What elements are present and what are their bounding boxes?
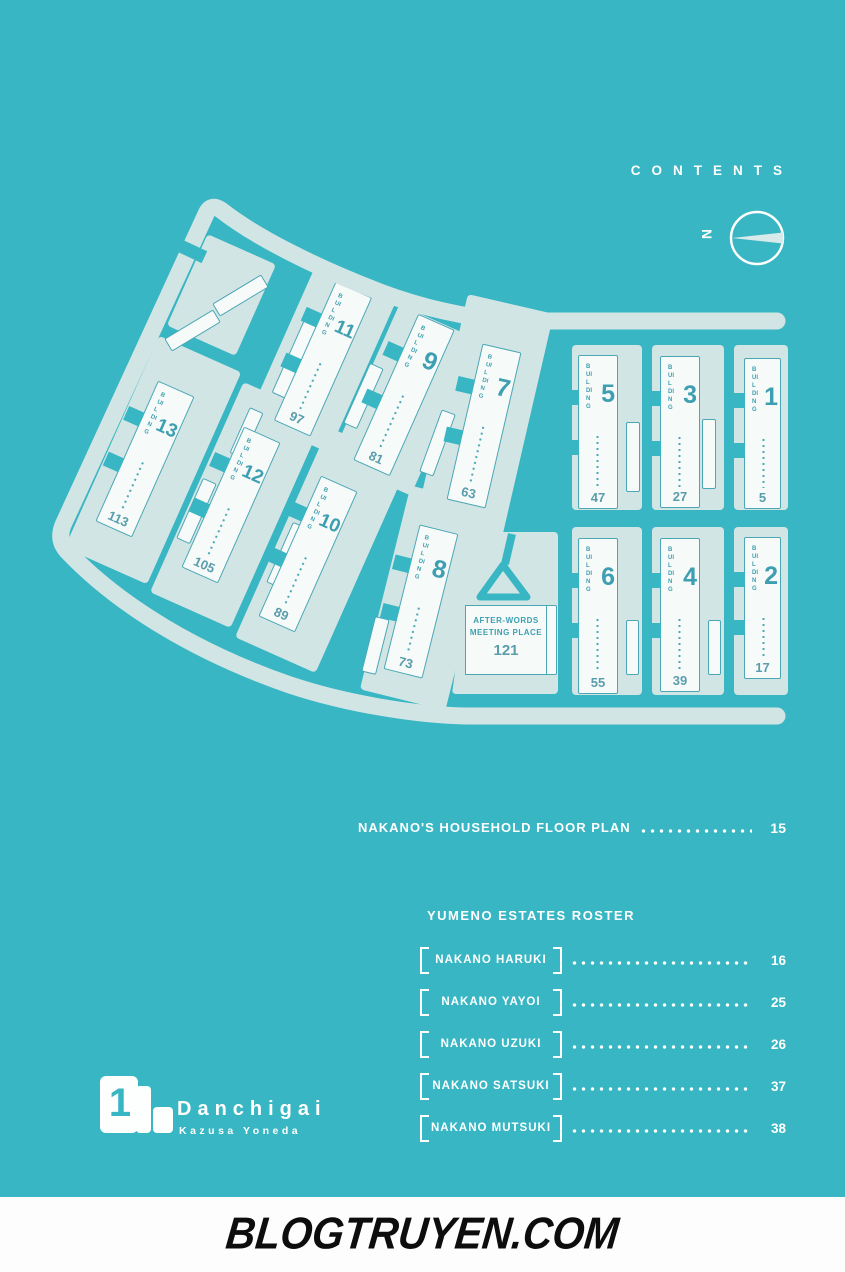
logo-volume-number: 1 [104, 1081, 136, 1126]
dotted-leader [570, 1087, 752, 1091]
compass-icon [731, 212, 783, 264]
contents-heading: CONTENTS [631, 163, 793, 178]
compass-needle [732, 233, 783, 244]
building-word: BUILDING [586, 546, 592, 594]
building-page: 73 [386, 651, 427, 675]
roster-name: NAKANO MUTSUKI [429, 1122, 553, 1134]
logo-block [136, 1086, 151, 1133]
building-word: BUILDING [478, 353, 495, 401]
bracket-left [420, 1115, 429, 1142]
contents-page: BUILDING 1 5 BUILDING 2 17 BUILDING 3 27… [0, 0, 845, 1272]
dotted-leader [406, 605, 421, 653]
dotted-leader [299, 361, 323, 410]
building-page: 63 [448, 481, 488, 504]
road-stub [562, 390, 579, 405]
small-building [626, 620, 639, 675]
floorplan-page: 15 [760, 820, 786, 836]
road-stub [644, 391, 661, 406]
road-stub [562, 623, 579, 638]
bracket-right [553, 1031, 562, 1058]
road-stub [728, 443, 745, 458]
after-words-meeting-place: AFTER-WORDS MEETING PLACE 121 [465, 605, 547, 675]
dotted-leader [762, 616, 765, 658]
building-2: BUILDING 2 17 [744, 537, 781, 679]
building-5: BUILDING 5 47 [578, 355, 618, 509]
small-building [702, 419, 716, 489]
building-page: 39 [661, 673, 699, 688]
dotted-leader [570, 1003, 752, 1007]
road-stub [728, 620, 745, 635]
building-number: 13 [153, 416, 180, 442]
danchigai-logo-icon: 1 [100, 1074, 180, 1136]
meeting-place-line2: MEETING PLACE [466, 628, 546, 637]
roster-row-haruki: NAKANO HARUKI 16 [420, 947, 786, 973]
building-3: BUILDING 3 27 [660, 356, 700, 508]
building-number: 2 [764, 564, 778, 589]
roster-row-mutsuki: NAKANO MUTSUKI 38 [420, 1115, 786, 1141]
roster-name: NAKANO YAYOI [429, 996, 553, 1008]
roster-page: 38 [760, 1121, 786, 1136]
building-number: 5 [601, 382, 615, 407]
dotted-leader [596, 617, 599, 673]
building-6: BUILDING 6 55 [578, 538, 618, 694]
bracket-left [420, 1073, 429, 1100]
dotted-leader [596, 434, 599, 488]
dotted-leader [570, 961, 752, 965]
dotted-leader [639, 829, 752, 833]
floorplan-label: NAKANO'S HOUSEHOLD FLOOR PLAN [358, 820, 631, 836]
road-stub [644, 623, 661, 638]
small-building [626, 422, 640, 492]
north-label: N [697, 229, 715, 247]
road-stub [728, 572, 745, 587]
roster-row-satsuki: NAKANO SATSUKI 37 [420, 1073, 786, 1099]
meeting-place-line1: AFTER-WORDS [466, 616, 546, 625]
bracket-left [420, 1031, 429, 1058]
footer-band: BLOGTRUYEN.COM [0, 1197, 845, 1272]
meeting-place-page: 121 [466, 642, 546, 659]
dotted-leader [570, 1129, 752, 1133]
bracket-right [553, 947, 562, 974]
dotted-leader [120, 460, 145, 511]
roster-title: YUMENO ESTATES ROSTER [427, 908, 635, 923]
roster-name: NAKANO UZUKI [429, 1038, 553, 1050]
building-number: 12 [239, 462, 266, 488]
roster-row-yayoi: NAKANO YAYOI 25 [420, 989, 786, 1015]
roster-page: 25 [760, 995, 786, 1010]
dotted-leader [378, 393, 405, 449]
building-number: 7 [493, 375, 512, 402]
bracket-right [553, 1073, 562, 1100]
building-number: 6 [601, 565, 615, 590]
roster-page: 37 [760, 1079, 786, 1094]
road-stub [644, 573, 661, 588]
dotted-leader [762, 437, 765, 488]
bracket-left [420, 989, 429, 1016]
dotted-leader [206, 506, 231, 557]
dotted-leader [570, 1045, 752, 1049]
building-page: 47 [579, 490, 617, 505]
roster-name: NAKANO HARUKI [429, 954, 553, 966]
roster-page: 16 [760, 953, 786, 968]
building-page: 55 [579, 675, 617, 690]
building-page: 5 [745, 490, 780, 505]
road-stub [562, 440, 579, 455]
building-word: BUILDING [668, 364, 674, 412]
road-stub [728, 393, 745, 408]
toc-floorplan-row: NAKANO'S HOUSEHOLD FLOOR PLAN 15 [358, 820, 786, 836]
building-word: BUILDING [586, 363, 592, 411]
building-number: 1 [764, 385, 778, 410]
roster-row-uzuki: NAKANO UZUKI 26 [420, 1031, 786, 1057]
roster-page: 26 [760, 1037, 786, 1052]
dotted-leader [283, 555, 308, 606]
bracket-right [553, 989, 562, 1016]
building-number: 10 [316, 511, 343, 537]
small-building [708, 620, 721, 675]
bracket-right [553, 1115, 562, 1142]
building-page: 27 [661, 489, 699, 504]
building-number: 3 [683, 383, 697, 408]
dotted-leader [678, 617, 681, 671]
building-1: BUILDING 1 5 [744, 358, 781, 509]
building-word: BUILDING [414, 534, 431, 582]
bracket-left [420, 947, 429, 974]
building-word: BUILDING [752, 545, 758, 593]
building-number: 8 [429, 556, 449, 584]
dotted-leader [469, 425, 485, 484]
building-4: BUILDING 4 39 [660, 538, 700, 692]
logo-author: Kazusa Yoneda [179, 1125, 301, 1137]
logo-title: Danchigai [177, 1098, 327, 1121]
building-number: 11 [332, 317, 358, 343]
road-stub [562, 573, 579, 588]
building-page: 17 [745, 660, 780, 675]
roster-name: NAKANO SATSUKI [429, 1080, 553, 1092]
dotted-leader [678, 435, 681, 487]
road-stub [644, 441, 661, 456]
building-word: BUILDING [668, 546, 674, 594]
building-number: 4 [683, 565, 697, 590]
building-word: BUILDING [752, 366, 758, 414]
logo-block [153, 1107, 173, 1133]
footer-watermark: BLOGTRUYEN.COM [222, 1193, 623, 1272]
